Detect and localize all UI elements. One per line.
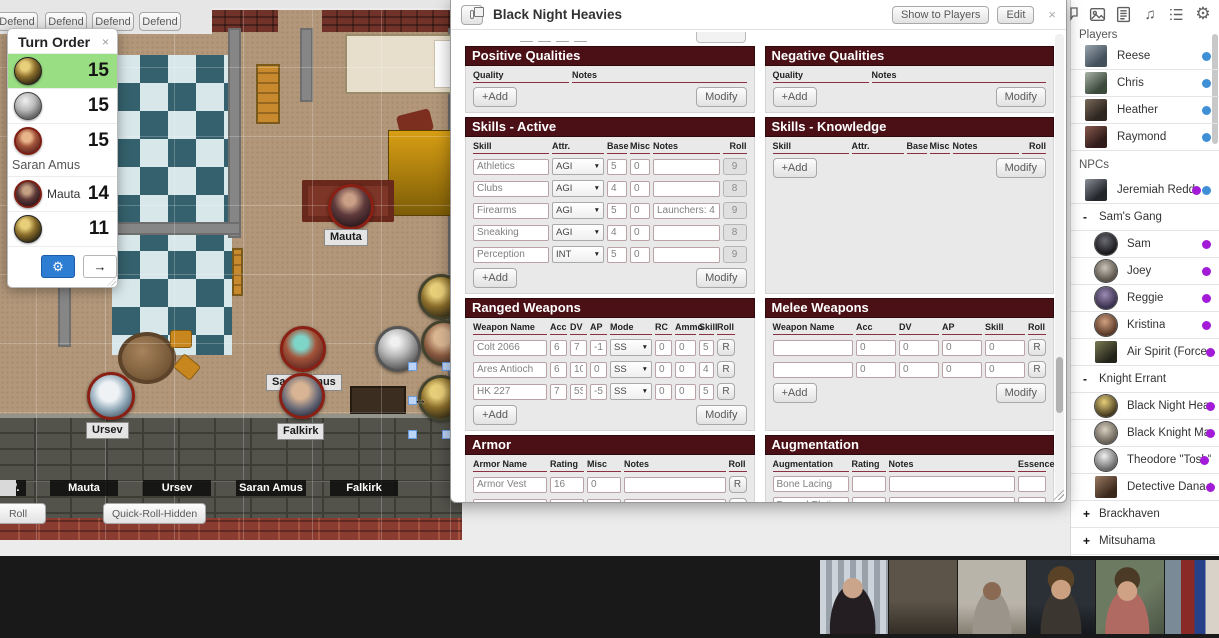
- token-avatar-gold: [14, 215, 42, 243]
- roll-button[interactable]: R: [717, 361, 735, 378]
- quick-roll-hidden-button[interactable]: Quick-Roll-Hidden: [103, 503, 206, 524]
- initiative-value: 11: [89, 218, 109, 240]
- notes-input[interactable]: [653, 181, 720, 197]
- sheet-scrollbar[interactable]: [1055, 34, 1064, 496]
- avatar: [1085, 179, 1107, 201]
- column-label: Quality: [773, 70, 869, 83]
- modify-button[interactable]: Modify: [996, 87, 1046, 107]
- sheet-content: Positive Qualities Quality Notes +Add Mo…: [451, 30, 1066, 503]
- base-input[interactable]: [607, 181, 627, 197]
- avatar: [1085, 45, 1107, 67]
- player-name: Chris: [1117, 77, 1144, 89]
- token-mauta[interactable]: [328, 184, 374, 230]
- character-sheet-dialog: Black Night Heavies Show to Players Edit…: [450, 0, 1067, 503]
- collapse-icon: -: [1083, 210, 1091, 224]
- turn-order-row[interactable]: 15: [8, 88, 117, 123]
- avatar: [1095, 287, 1117, 309]
- armor-row: R: [473, 476, 747, 493]
- nameplate: Mauta: [50, 480, 118, 496]
- member-row[interactable]: Theodore "Tosh" A: [1071, 447, 1219, 474]
- roll-button[interactable]: R: [717, 339, 735, 356]
- attr-select[interactable]: AGI▼: [552, 202, 604, 219]
- group-header-sams-gang[interactable]: - Sam's Gang: [1071, 204, 1219, 231]
- weapon-row: SS▼ R: [473, 361, 747, 378]
- armor-name-input[interactable]: [473, 477, 547, 493]
- dv-input[interactable]: [570, 340, 587, 356]
- rc-input[interactable]: [655, 340, 672, 356]
- member-row[interactable]: Sam: [1071, 231, 1219, 258]
- video-chat-bar: [0, 556, 1219, 638]
- roll-button[interactable]: R: [729, 498, 747, 503]
- notes-input[interactable]: [653, 203, 720, 219]
- column-label: Roll: [1022, 141, 1046, 154]
- member-row[interactable]: Detective Dana Oak: [1071, 474, 1219, 501]
- ammo-input[interactable]: [675, 384, 696, 400]
- avatar: [1095, 395, 1117, 417]
- initiative-value: 14: [88, 183, 109, 205]
- npc-dot: [1202, 294, 1211, 303]
- ammo-input[interactable]: [675, 340, 696, 356]
- npcs-section-label: NPCs: [1071, 151, 1219, 177]
- member-row[interactable]: Kristina: [1071, 312, 1219, 339]
- misc-input[interactable]: [587, 477, 621, 493]
- close-icon[interactable]: ×: [102, 35, 109, 49]
- member-name: Detective Dana Oak: [1127, 481, 1211, 493]
- chevron-down-icon: ▼: [642, 388, 648, 395]
- armor-name-input[interactable]: [473, 499, 547, 504]
- webcam-feed[interactable]: [1096, 560, 1164, 634]
- scrolled-partial-row: [465, 32, 1054, 46]
- column-label: Misc: [930, 141, 950, 154]
- chevron-down-icon: ▼: [642, 344, 648, 351]
- ammo-input[interactable]: [675, 362, 696, 378]
- column-label: Roll: [729, 459, 747, 472]
- column-label: Roll: [1028, 322, 1046, 335]
- npc-dot: [1200, 456, 1209, 465]
- column-label: Misc: [630, 141, 650, 154]
- ranged-weapons-section: Ranged Weapons Weapon Name Acc DV AP Mod…: [465, 298, 755, 431]
- column-label: Attr.: [552, 141, 604, 154]
- essence-input[interactable]: [1018, 476, 1046, 492]
- webcam-feed[interactable]: [889, 560, 957, 634]
- member-name: Black Knight Mage: [1127, 427, 1211, 439]
- skill-name-input[interactable]: [473, 181, 549, 197]
- nameplate: Saran Amus: [236, 480, 306, 496]
- dv-input[interactable]: [899, 362, 939, 378]
- expand-icon: +: [1083, 507, 1091, 521]
- member-row[interactable]: Air Spirit (Force 4): [1071, 339, 1219, 366]
- weapon-row: R: [773, 339, 1047, 356]
- chevron-down-icon: ▼: [594, 185, 600, 192]
- member-row[interactable]: Black Night Heavies: [1071, 393, 1219, 420]
- token-avatar-mauta: [14, 180, 42, 208]
- skills-knowledge-section: Skills - Knowledge Skill Attr. Base Misc…: [765, 117, 1055, 294]
- add-weapon-button[interactable]: +Add: [773, 383, 817, 403]
- member-row[interactable]: Reggie: [1071, 285, 1219, 312]
- chevron-down-icon: ▼: [594, 229, 600, 236]
- column-label: Skill: [773, 141, 849, 154]
- player-row[interactable]: Heather: [1071, 97, 1219, 124]
- rc-input[interactable]: [655, 362, 672, 378]
- section-header: Negative Qualities: [765, 46, 1055, 66]
- chevron-down-icon: ▼: [594, 163, 600, 170]
- online-status-dot: [1202, 133, 1211, 142]
- melee-weapons-section: Melee Weapons Weapon Name Acc DV AP Skil…: [765, 298, 1055, 431]
- group-label: Brackhaven: [1099, 508, 1160, 520]
- turn-order-row[interactable]: 11: [8, 211, 117, 246]
- turn-entry-name: Mauta: [47, 187, 80, 201]
- collapse-icon: -: [1083, 372, 1091, 386]
- notes-input[interactable]: [624, 499, 726, 504]
- skill-input[interactable]: [699, 384, 714, 400]
- column-label: Notes: [872, 70, 1047, 83]
- token-label-mauta: Mauta: [324, 229, 368, 246]
- token-falkirk[interactable]: [279, 373, 325, 419]
- member-name: Sam: [1127, 238, 1151, 250]
- avatar: [1085, 99, 1107, 121]
- group-label: Sam's Gang: [1099, 211, 1162, 223]
- avatar: [1095, 341, 1117, 363]
- resize-handle[interactable]: [1054, 490, 1064, 500]
- roll-button[interactable]: R: [1028, 361, 1046, 378]
- ap-input[interactable]: [590, 362, 607, 378]
- modify-button[interactable]: Modify: [996, 158, 1046, 178]
- webcam-feed[interactable]: [958, 560, 1026, 634]
- misc-input[interactable]: [630, 159, 650, 175]
- online-status-dot: [1202, 106, 1211, 115]
- augmentation-row: [773, 476, 1047, 492]
- webcam-feed[interactable]: [1165, 560, 1219, 634]
- collections-icon[interactable]: [1167, 4, 1187, 24]
- nameplate: Ursev: [143, 480, 211, 496]
- show-to-players-button[interactable]: Show to Players: [892, 6, 989, 24]
- modify-button[interactable]: Modify: [696, 268, 746, 288]
- column-label: Skill: [473, 141, 549, 154]
- base-input[interactable]: [607, 203, 627, 219]
- selection-handle[interactable]: [408, 430, 417, 439]
- avatar: [1095, 233, 1117, 255]
- drag-cursor-icon: ↔: [414, 392, 427, 407]
- edit-button[interactable]: Edit: [997, 6, 1034, 24]
- turn-order-title: Turn Order: [18, 34, 90, 50]
- group-header-mitsuhama[interactable]: + Mitsuhama: [1071, 528, 1219, 555]
- map-brick-wall: [322, 10, 462, 32]
- avatar: [1095, 449, 1117, 471]
- map-street: [0, 418, 462, 528]
- popout-button[interactable]: [461, 5, 483, 25]
- npc-name: Jeremiah Redd: [1117, 184, 1195, 196]
- section-header: Melee Weapons: [765, 298, 1055, 318]
- skill-row: AGI▼ 9: [473, 158, 747, 175]
- npc-dot: [1202, 240, 1211, 249]
- npc-row[interactable]: Jeremiah Redd: [1071, 177, 1219, 204]
- group-label: Mitsuhama: [1099, 535, 1155, 547]
- column-label: Weapon Name: [473, 322, 547, 335]
- map-crate: [350, 386, 406, 414]
- column-label: Roll: [717, 322, 735, 335]
- dv-input[interactable]: [570, 362, 587, 378]
- rating-input[interactable]: [852, 476, 886, 492]
- selection-handle[interactable]: [408, 362, 417, 371]
- weapon-name-input[interactable]: [473, 384, 547, 400]
- acc-input[interactable]: [856, 362, 896, 378]
- misc-input[interactable]: [587, 499, 621, 504]
- column-label: AP: [942, 322, 982, 335]
- augmentation-name-input[interactable]: [773, 476, 849, 492]
- dv-input[interactable]: [899, 340, 939, 356]
- weapon-row: R: [773, 361, 1047, 378]
- npc-dot: [1206, 483, 1215, 492]
- column-label: Skill: [699, 322, 714, 335]
- rating-input[interactable]: [550, 477, 584, 493]
- column-label: Mode: [610, 322, 652, 335]
- map-chair: [173, 353, 201, 381]
- acc-input[interactable]: [550, 362, 567, 378]
- column-label: Notes: [953, 141, 1020, 154]
- weapon-name-input[interactable]: [773, 362, 854, 378]
- negative-qualities-section: Negative Qualities Quality Notes +Add Mo…: [765, 46, 1055, 113]
- roll-button[interactable]: 9: [723, 202, 747, 219]
- skill-row: AGI▼ 9: [473, 202, 747, 219]
- base-input[interactable]: [607, 225, 627, 241]
- column-label: Ammo: [675, 322, 696, 335]
- turn-entry-name: Saran Amus: [8, 158, 117, 176]
- weapon-name-input[interactable]: [773, 340, 854, 356]
- turn-order-row[interactable]: 15 Saran Amus: [8, 123, 117, 176]
- ap-input[interactable]: [590, 340, 607, 356]
- essence-input[interactable]: [1018, 497, 1046, 503]
- weapon-name-input[interactable]: [473, 340, 547, 356]
- player-name: Reese: [1117, 50, 1150, 62]
- initiative-value: 15: [88, 95, 109, 117]
- member-name: Kristina: [1127, 319, 1165, 331]
- webcam-feed[interactable]: [1027, 560, 1095, 634]
- roll-button[interactable]: 8: [723, 180, 747, 197]
- ap-input[interactable]: [590, 384, 607, 400]
- npc-dot: [1206, 429, 1215, 438]
- map-chair: [170, 330, 192, 348]
- member-row[interactable]: Black Knight Mage: [1071, 420, 1219, 447]
- mode-select[interactable]: SS▼: [610, 339, 652, 356]
- column-label: Weapon Name: [773, 322, 854, 335]
- skill-input[interactable]: [985, 362, 1025, 378]
- roll-button[interactable]: R: [1028, 339, 1046, 356]
- chevron-down-icon: ▼: [594, 251, 600, 258]
- attr-select[interactable]: AGI▼: [552, 180, 604, 197]
- skill-name-input[interactable]: [473, 203, 549, 219]
- skill-name-input[interactable]: [473, 225, 549, 241]
- chevron-down-icon: ▼: [642, 366, 648, 373]
- section-header: Positive Qualities: [465, 46, 755, 66]
- notes-input[interactable]: [653, 247, 720, 263]
- webcam-feed[interactable]: [820, 560, 888, 634]
- member-name: Joey: [1127, 265, 1151, 277]
- online-status-dot: [1202, 186, 1211, 195]
- add-skill-button[interactable]: +Add: [473, 268, 517, 288]
- attr-select[interactable]: AGI▼: [552, 158, 604, 175]
- acc-input[interactable]: [550, 384, 567, 400]
- roll-button[interactable]: 9: [723, 158, 747, 175]
- section-header: Ranged Weapons: [465, 298, 755, 318]
- avatar: [1085, 72, 1107, 94]
- weapon-name-input[interactable]: [473, 362, 547, 378]
- add-quality-button[interactable]: +Add: [473, 87, 517, 107]
- column-label: Notes: [653, 141, 720, 154]
- npc-dot: [1202, 267, 1211, 276]
- armor-row: R: [473, 498, 747, 503]
- modify-button[interactable]: Modify: [696, 405, 746, 425]
- initiative-value: 15: [88, 130, 109, 152]
- close-icon[interactable]: ×: [1048, 7, 1056, 22]
- notes-input[interactable]: [653, 159, 720, 175]
- base-input[interactable]: [607, 159, 627, 175]
- section-header: Skills - Knowledge: [765, 117, 1055, 137]
- player-name: Raymond: [1117, 131, 1166, 143]
- member-name: Air Spirit (Force 4): [1127, 346, 1211, 358]
- skill-row: INT▼ 9: [473, 246, 747, 263]
- member-row[interactable]: Joey: [1071, 258, 1219, 285]
- token-saran-amus[interactable]: [280, 326, 326, 372]
- notes-input[interactable]: [653, 225, 720, 241]
- dv-input[interactable]: [570, 384, 587, 400]
- jukebox-icon[interactable]: ♫: [1140, 4, 1160, 24]
- avatar: [1085, 126, 1107, 148]
- chevron-down-icon: ▼: [594, 207, 600, 214]
- defend-button-4[interactable]: Defend: [139, 12, 181, 31]
- rating-input[interactable]: [550, 499, 584, 504]
- online-status-dot: [1202, 79, 1211, 88]
- member-name: Black Night Heavies: [1127, 400, 1211, 412]
- popout-icon: [470, 10, 474, 19]
- rc-input[interactable]: [655, 384, 672, 400]
- column-label: DV: [899, 322, 939, 335]
- column-label: Rating: [852, 459, 886, 472]
- modify-button[interactable]: Modify: [696, 87, 746, 107]
- acc-input[interactable]: [856, 340, 896, 356]
- column-label: Base: [907, 141, 927, 154]
- color-swatch[interactable]: [0, 480, 16, 496]
- augmentation-section: Augmentation Augmentation Rating Notes E…: [765, 435, 1055, 503]
- misc-input[interactable]: [630, 247, 650, 263]
- column-label: Acc: [550, 322, 567, 335]
- positive-qualities-section: Positive Qualities Quality Notes +Add Mo…: [465, 46, 755, 113]
- armor-section: Armor Armor Name Rating Misc Notes Roll: [465, 435, 755, 503]
- column-label: Roll: [723, 141, 747, 154]
- journal-icon[interactable]: [1114, 4, 1134, 24]
- turn-order-row[interactable]: Mauta 14: [8, 176, 117, 211]
- token-label-ursev: Ursev: [86, 422, 129, 439]
- member-name: Theodore "Tosh" A: [1127, 454, 1211, 466]
- misc-input[interactable]: [630, 203, 650, 219]
- group-header-brackhaven[interactable]: + Brackhaven: [1071, 501, 1219, 528]
- section-header: Augmentation: [765, 435, 1055, 455]
- turn-order-row[interactable]: 15: [8, 53, 117, 88]
- turn-order-settings-button[interactable]: ⚙: [41, 255, 75, 278]
- column-label: Acc: [856, 322, 896, 335]
- column-label: AP: [590, 322, 607, 335]
- roll-button[interactable]: R: [717, 383, 735, 400]
- column-label: Attr.: [852, 141, 904, 154]
- notes-input[interactable]: [889, 476, 1016, 492]
- add-skill-button[interactable]: +Add: [773, 158, 817, 178]
- app-window: Saran Amus ↔ Mauta Ursev Falkirk Defend …: [0, 0, 1219, 638]
- token-ursev[interactable]: [87, 372, 135, 420]
- map-door: [256, 64, 280, 124]
- base-input[interactable]: [607, 247, 627, 263]
- npc-dot: [1192, 186, 1201, 195]
- attr-select[interactable]: INT▼: [552, 246, 604, 263]
- map-door: [232, 248, 243, 296]
- column-label: Augmentation: [773, 459, 849, 472]
- resize-handle[interactable]: [107, 277, 116, 286]
- token-label-falkirk: Falkirk: [277, 423, 324, 440]
- column-label: Armor Name: [473, 459, 547, 472]
- add-quality-button[interactable]: +Add: [773, 87, 817, 107]
- rating-input[interactable]: [852, 497, 886, 503]
- map-round-table: [118, 332, 176, 384]
- turn-order-window: Turn Order × 15 15 15 Saran Amus Mauta 1…: [7, 28, 118, 288]
- map-wall: [228, 28, 241, 238]
- modify-button[interactable]: Modify: [996, 383, 1046, 403]
- skill-input[interactable]: [699, 340, 714, 356]
- misc-input[interactable]: [630, 181, 650, 197]
- misc-input[interactable]: [630, 225, 650, 241]
- skill-name-input[interactable]: [473, 159, 549, 175]
- map-wall: [300, 28, 313, 102]
- roll-button[interactable]: 9: [723, 246, 747, 263]
- player-row[interactable]: Reese: [1071, 43, 1219, 70]
- top-toolbar-area: [212, 0, 462, 8]
- add-weapon-button[interactable]: +Add: [473, 405, 517, 425]
- attr-select[interactable]: AGI▼: [552, 224, 604, 241]
- skill-input[interactable]: [699, 362, 714, 378]
- arrow-right-icon: →: [94, 259, 107, 274]
- group-header-knight-errant[interactable]: - Knight Errant: [1071, 366, 1219, 393]
- map-bed: [345, 34, 458, 94]
- npc-dot: [1206, 348, 1215, 357]
- acc-input[interactable]: [550, 340, 567, 356]
- notes-input[interactable]: [889, 497, 1016, 503]
- mode-select[interactable]: SS▼: [610, 361, 652, 378]
- token-avatar-saran: [14, 127, 42, 155]
- mode-select[interactable]: SS▼: [610, 383, 652, 400]
- art-library-icon[interactable]: [1087, 4, 1107, 24]
- player-row[interactable]: Chris: [1071, 70, 1219, 97]
- advance-turn-button[interactable]: →: [83, 255, 117, 278]
- ap-input[interactable]: [942, 340, 982, 356]
- dialog-title: Black Night Heavies: [493, 7, 622, 22]
- augmentation-row: [773, 497, 1047, 503]
- column-label: Rating: [550, 459, 584, 472]
- column-label: Notes: [889, 459, 1016, 472]
- skills-active-section: Skills - Active Skill Attr. Base Misc No…: [465, 117, 755, 294]
- augmentation-name-input[interactable]: [773, 497, 849, 503]
- ap-input[interactable]: [942, 362, 982, 378]
- player-row[interactable]: Raymond: [1071, 124, 1219, 151]
- settings-gear-icon[interactable]: ⚙: [1193, 4, 1213, 24]
- weapon-row: SS▼ R: [473, 339, 747, 356]
- quick-roll-button[interactable]: Roll: [0, 503, 46, 524]
- roll-button[interactable]: 8: [723, 224, 747, 241]
- notes-input[interactable]: [624, 477, 726, 493]
- weapon-row: SS▼ R: [473, 383, 747, 400]
- roll-button[interactable]: R: [729, 476, 747, 493]
- skill-input[interactable]: [985, 340, 1025, 356]
- partial-button: [696, 32, 746, 43]
- initiative-value: 15: [88, 60, 109, 82]
- skill-name-input[interactable]: [473, 247, 549, 263]
- sidebar-toolbar: ♫ ⚙: [1071, 0, 1219, 28]
